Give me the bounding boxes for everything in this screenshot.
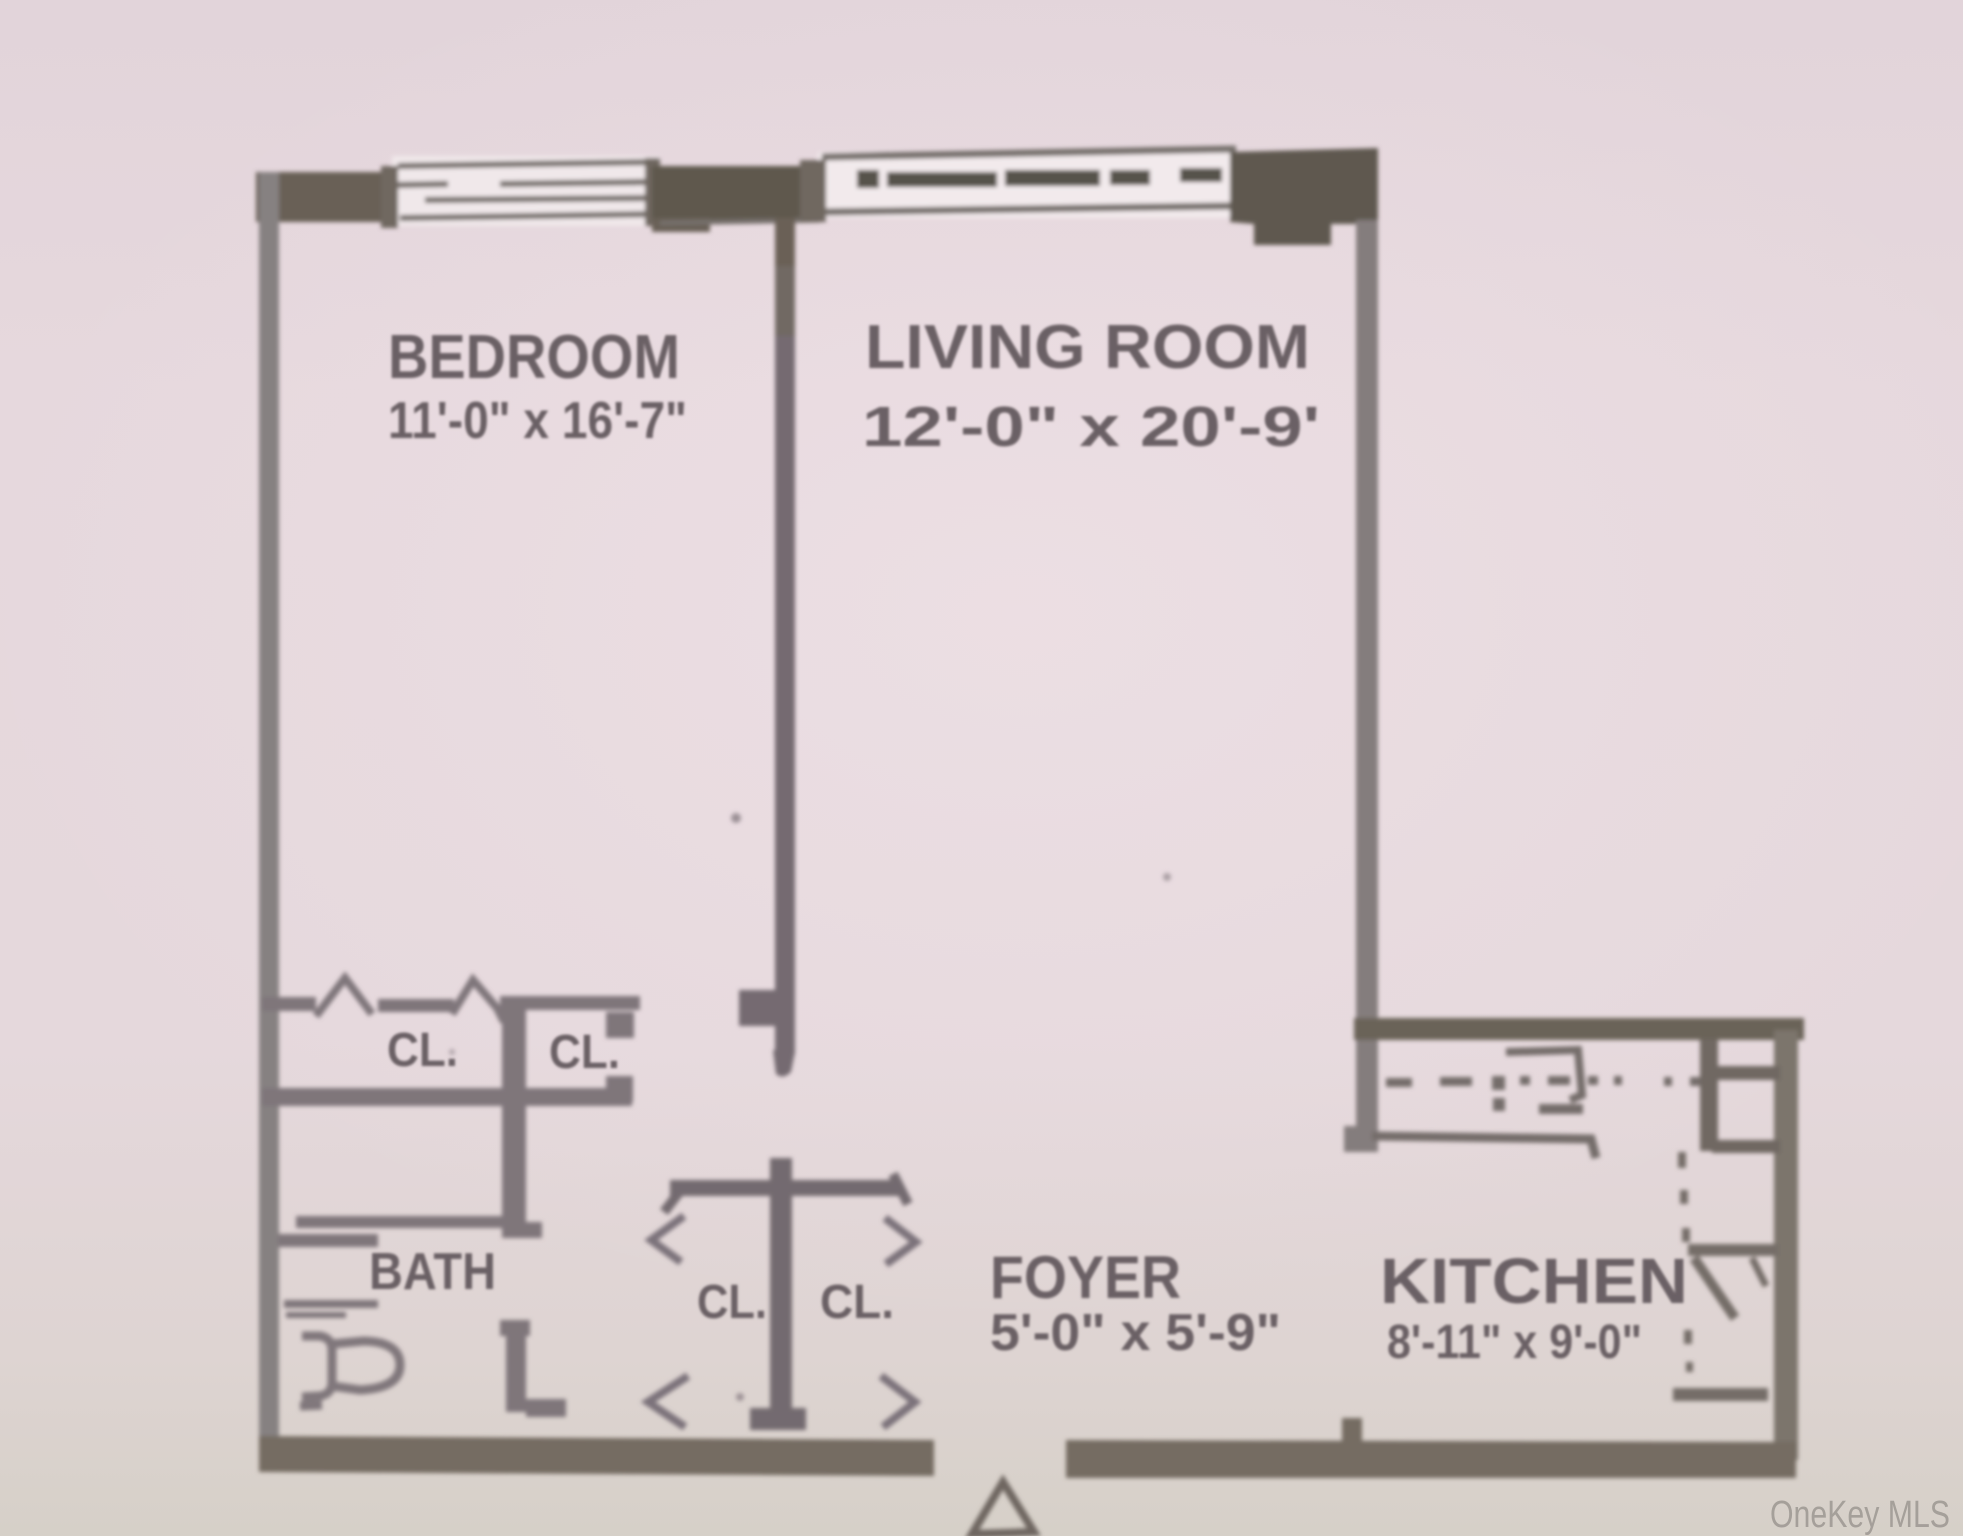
svg-text:12'-0" x 20'-9': 12'-0" x 20'-9' xyxy=(862,395,1320,459)
svg-text:CL.: CL. xyxy=(549,1026,620,1079)
svg-text:5'-0" x 5'-9": 5'-0" x 5'-9" xyxy=(990,1304,1281,1362)
svg-text:CL.: CL. xyxy=(820,1276,894,1329)
svg-text:OneKey MLS: OneKey MLS xyxy=(1770,1494,1950,1536)
svg-text:KITCHEN: KITCHEN xyxy=(1380,1245,1688,1317)
svg-text:11'-0" x 16'-7": 11'-0" x 16'-7" xyxy=(388,392,687,450)
svg-text:LIVING ROOM: LIVING ROOM xyxy=(865,313,1310,382)
svg-text:BATH: BATH xyxy=(369,1243,496,1301)
svg-text:CL.: CL. xyxy=(697,1276,767,1329)
svg-text:8'-11" x 9'-0": 8'-11" x 9'-0" xyxy=(1387,1316,1642,1369)
svg-text:FOYER: FOYER xyxy=(990,1244,1181,1311)
svg-text:CL.: CL. xyxy=(387,1024,458,1077)
svg-text:BEDROOM: BEDROOM xyxy=(388,323,680,392)
